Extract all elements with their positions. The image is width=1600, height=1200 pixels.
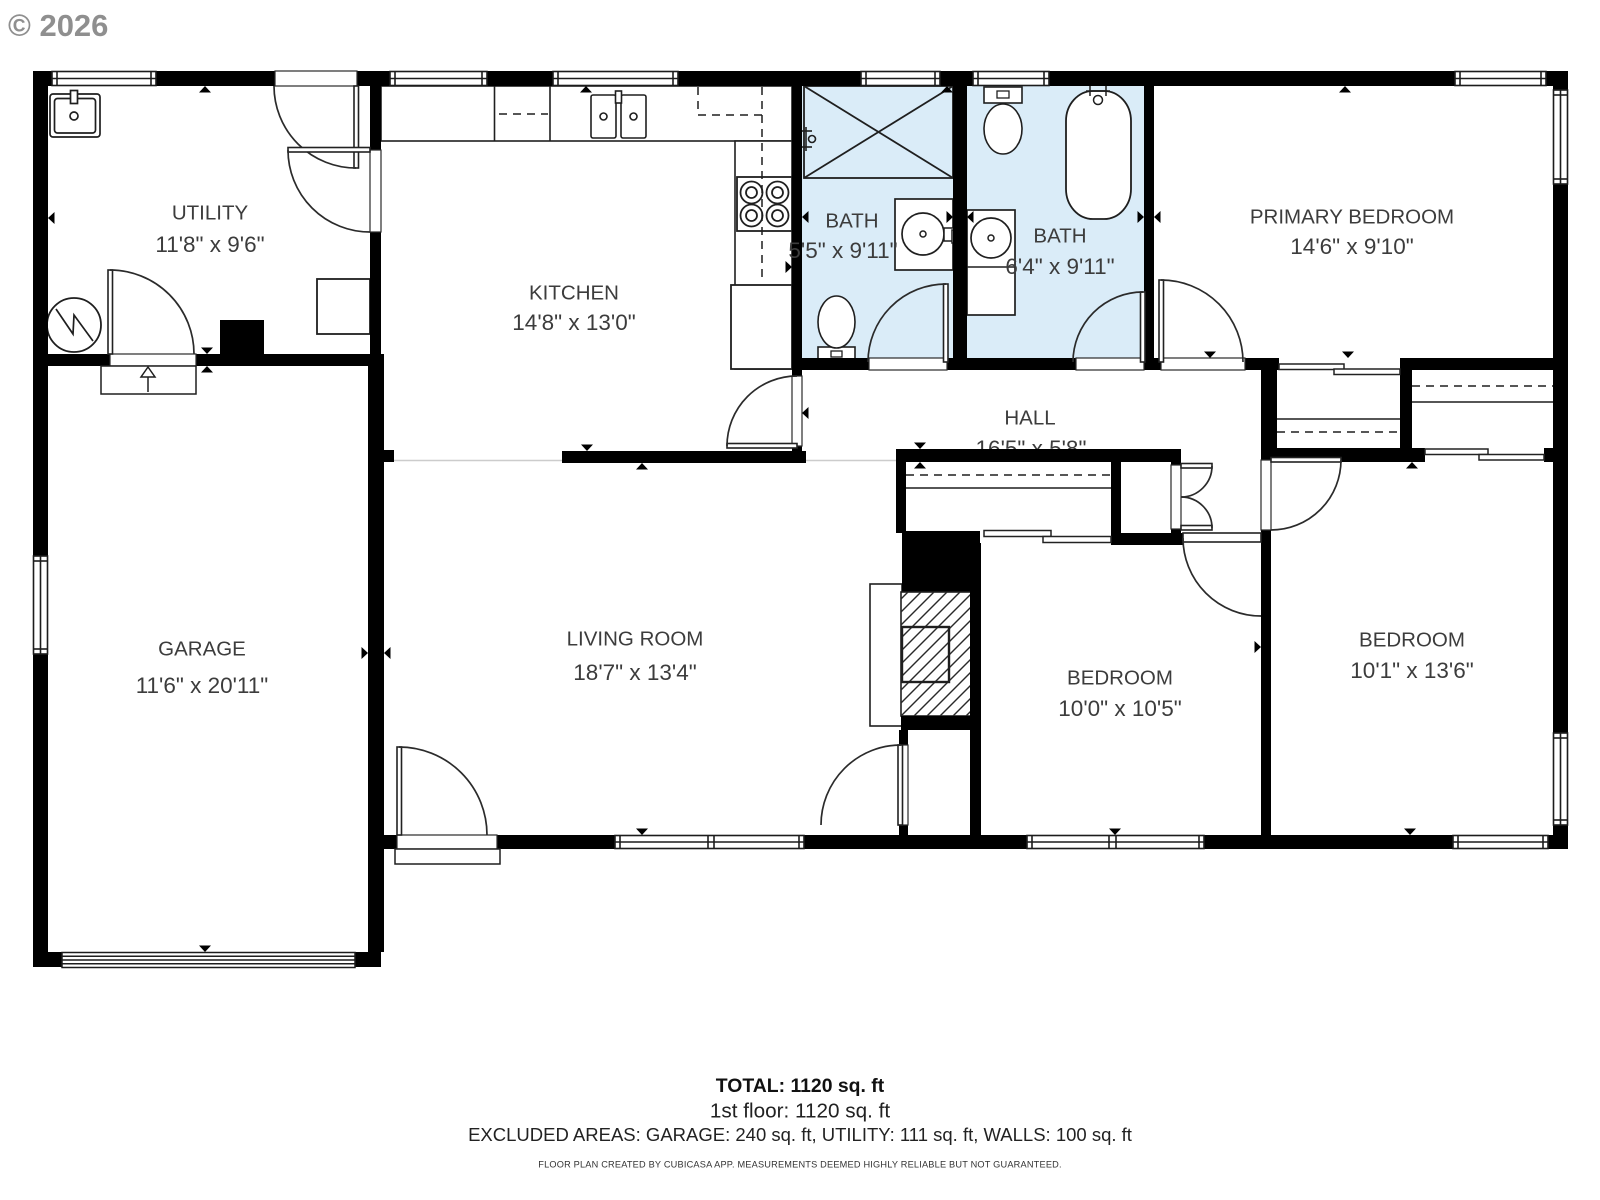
svg-text:EXCLUDED AREAS: GARAGE: 240 sq: EXCLUDED AREAS: GARAGE: 240 sq. ft, UTIL… [468, 1124, 1132, 1145]
svg-text:HALL: HALL [1004, 406, 1055, 429]
svg-text:LIVING ROOM: LIVING ROOM [567, 627, 704, 650]
svg-text:11'6" x 20'11": 11'6" x 20'11" [136, 673, 269, 698]
svg-text:KITCHEN: KITCHEN [529, 281, 619, 304]
svg-text:© 2026: © 2026 [8, 8, 108, 43]
svg-text:10'0" x 10'5": 10'0" x 10'5" [1058, 696, 1181, 721]
svg-text:14'6" x 9'10": 14'6" x 9'10" [1290, 234, 1413, 259]
svg-text:BEDROOM: BEDROOM [1359, 628, 1465, 651]
svg-text:FLOOR PLAN CREATED BY CUBICASA: FLOOR PLAN CREATED BY CUBICASA APP. MEAS… [538, 1159, 1061, 1169]
svg-text:TOTAL: 1120 sq. ft: TOTAL: 1120 sq. ft [716, 1075, 885, 1097]
svg-text:BEDROOM: BEDROOM [1067, 666, 1173, 689]
svg-text:BATH: BATH [825, 209, 878, 232]
svg-text:10'1" x 13'6": 10'1" x 13'6" [1350, 658, 1473, 683]
svg-text:GARAGE: GARAGE [158, 637, 246, 660]
svg-text:BATH: BATH [1033, 224, 1086, 247]
svg-text:UTILITY: UTILITY [172, 201, 249, 224]
svg-text:6'4" x 9'11": 6'4" x 9'11" [1005, 254, 1114, 279]
svg-text:5'5" x 9'11": 5'5" x 9'11" [788, 238, 897, 263]
svg-text:18'7" x 13'4": 18'7" x 13'4" [573, 660, 696, 685]
svg-text:PRIMARY BEDROOM: PRIMARY BEDROOM [1250, 205, 1454, 228]
svg-text:11'8" x 9'6": 11'8" x 9'6" [155, 232, 264, 257]
svg-text:14'8" x 13'0": 14'8" x 13'0" [512, 310, 635, 335]
svg-text:1st floor: 1120 sq. ft: 1st floor: 1120 sq. ft [710, 1099, 890, 1122]
